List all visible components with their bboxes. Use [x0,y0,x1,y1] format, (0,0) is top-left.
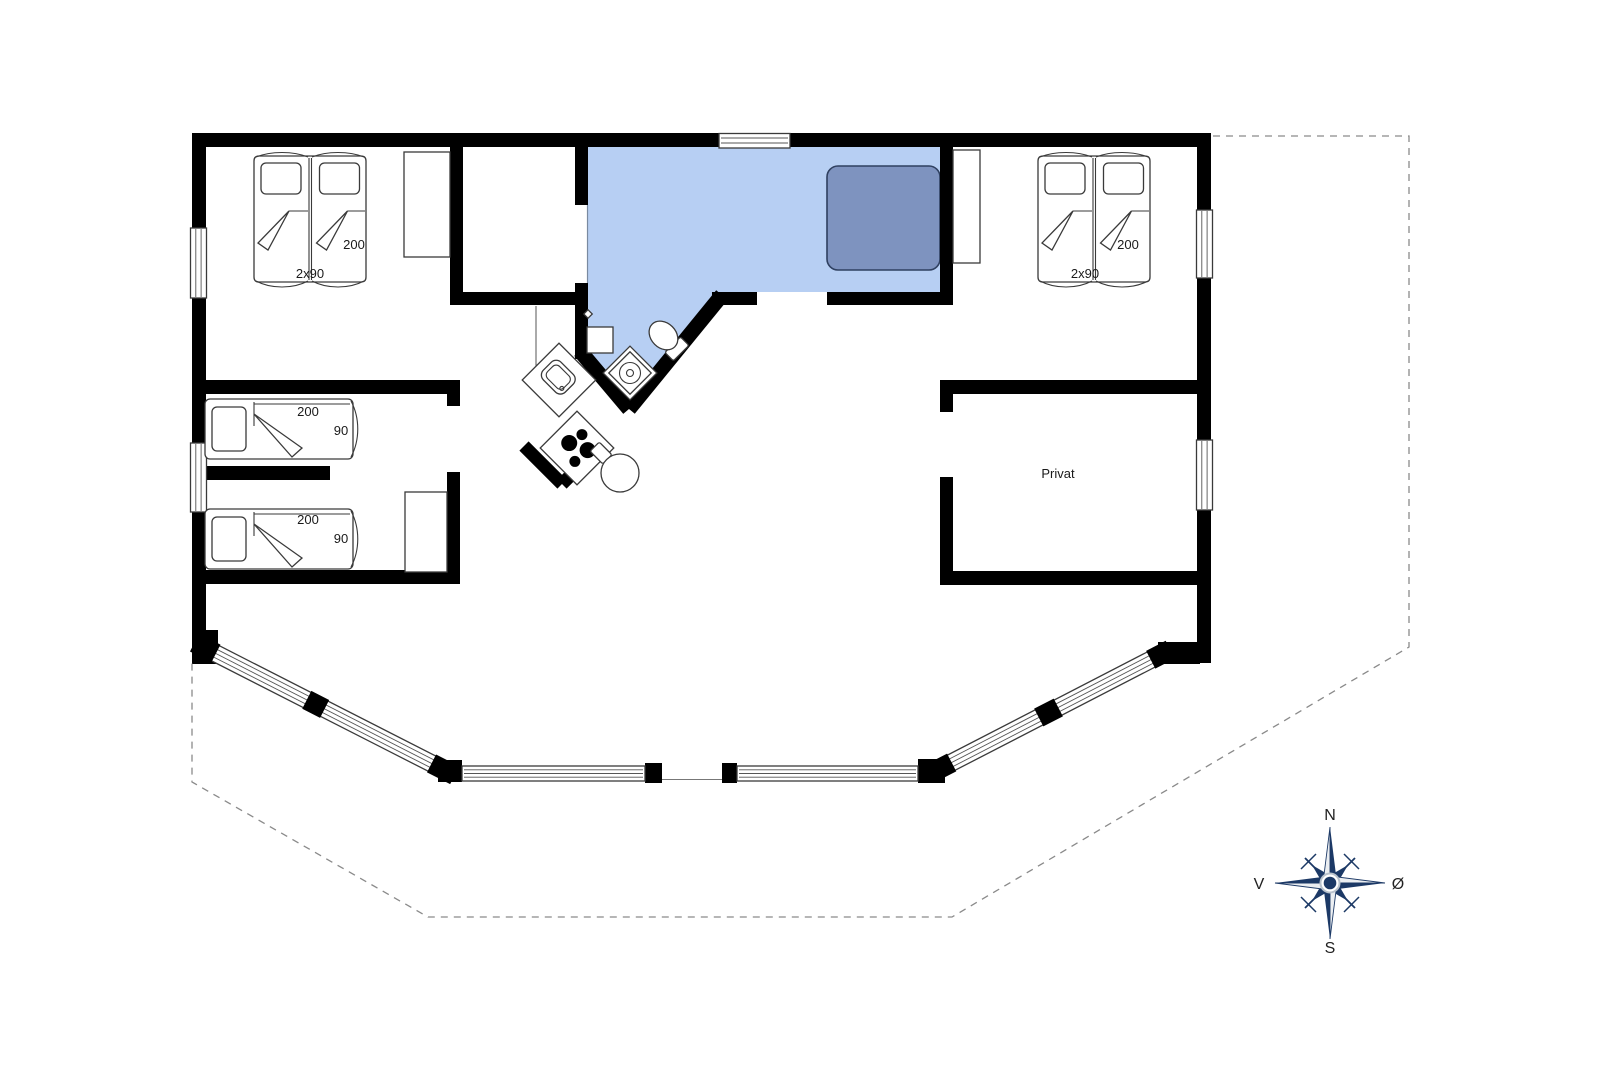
bed-single-lower-length-label: 200 [297,512,319,527]
window-top-bathroom [719,134,790,149]
spa-tub [827,166,940,270]
bed-single-upper-length-label: 200 [297,404,319,419]
compass-rose [1275,827,1385,939]
window-right-private [1197,440,1213,510]
compass-east-label: Ø [1392,876,1404,893]
window-band-south-left [462,766,645,781]
wardrobe-bedroom-right [953,150,980,263]
window-right-bedroom [1197,210,1213,278]
compass-west-label: V [1254,876,1265,893]
bed-double-right-width-label: 2x90 [1071,266,1099,281]
private-room-label: Privat [1041,466,1075,481]
wardrobe-kids-room [405,492,447,572]
compass-north-label: N [1324,807,1336,824]
bed-double-right-length-label: 200 [1117,237,1139,252]
wardrobe-bedroom-left [404,152,450,257]
floor-plan-page: 200 2x90 200 2x90 200 90 200 90 Privat N… [0,0,1600,1066]
bed-double-left-length-label: 200 [343,237,365,252]
window-left-kidsroom [191,443,207,512]
bed-single-lower-width-label: 90 [334,531,348,546]
shower-base [587,327,613,353]
window-band-south-right [737,766,918,781]
window-left-bedroom [191,228,207,298]
bed-double-left-width-label: 2x90 [296,266,324,281]
bed-single-upper-width-label: 90 [334,423,348,438]
kitchen-table [601,454,639,492]
floor-plan-drawing: 200 2x90 200 2x90 200 90 200 90 Privat N… [0,0,1600,1066]
compass-south-label: S [1325,940,1336,957]
